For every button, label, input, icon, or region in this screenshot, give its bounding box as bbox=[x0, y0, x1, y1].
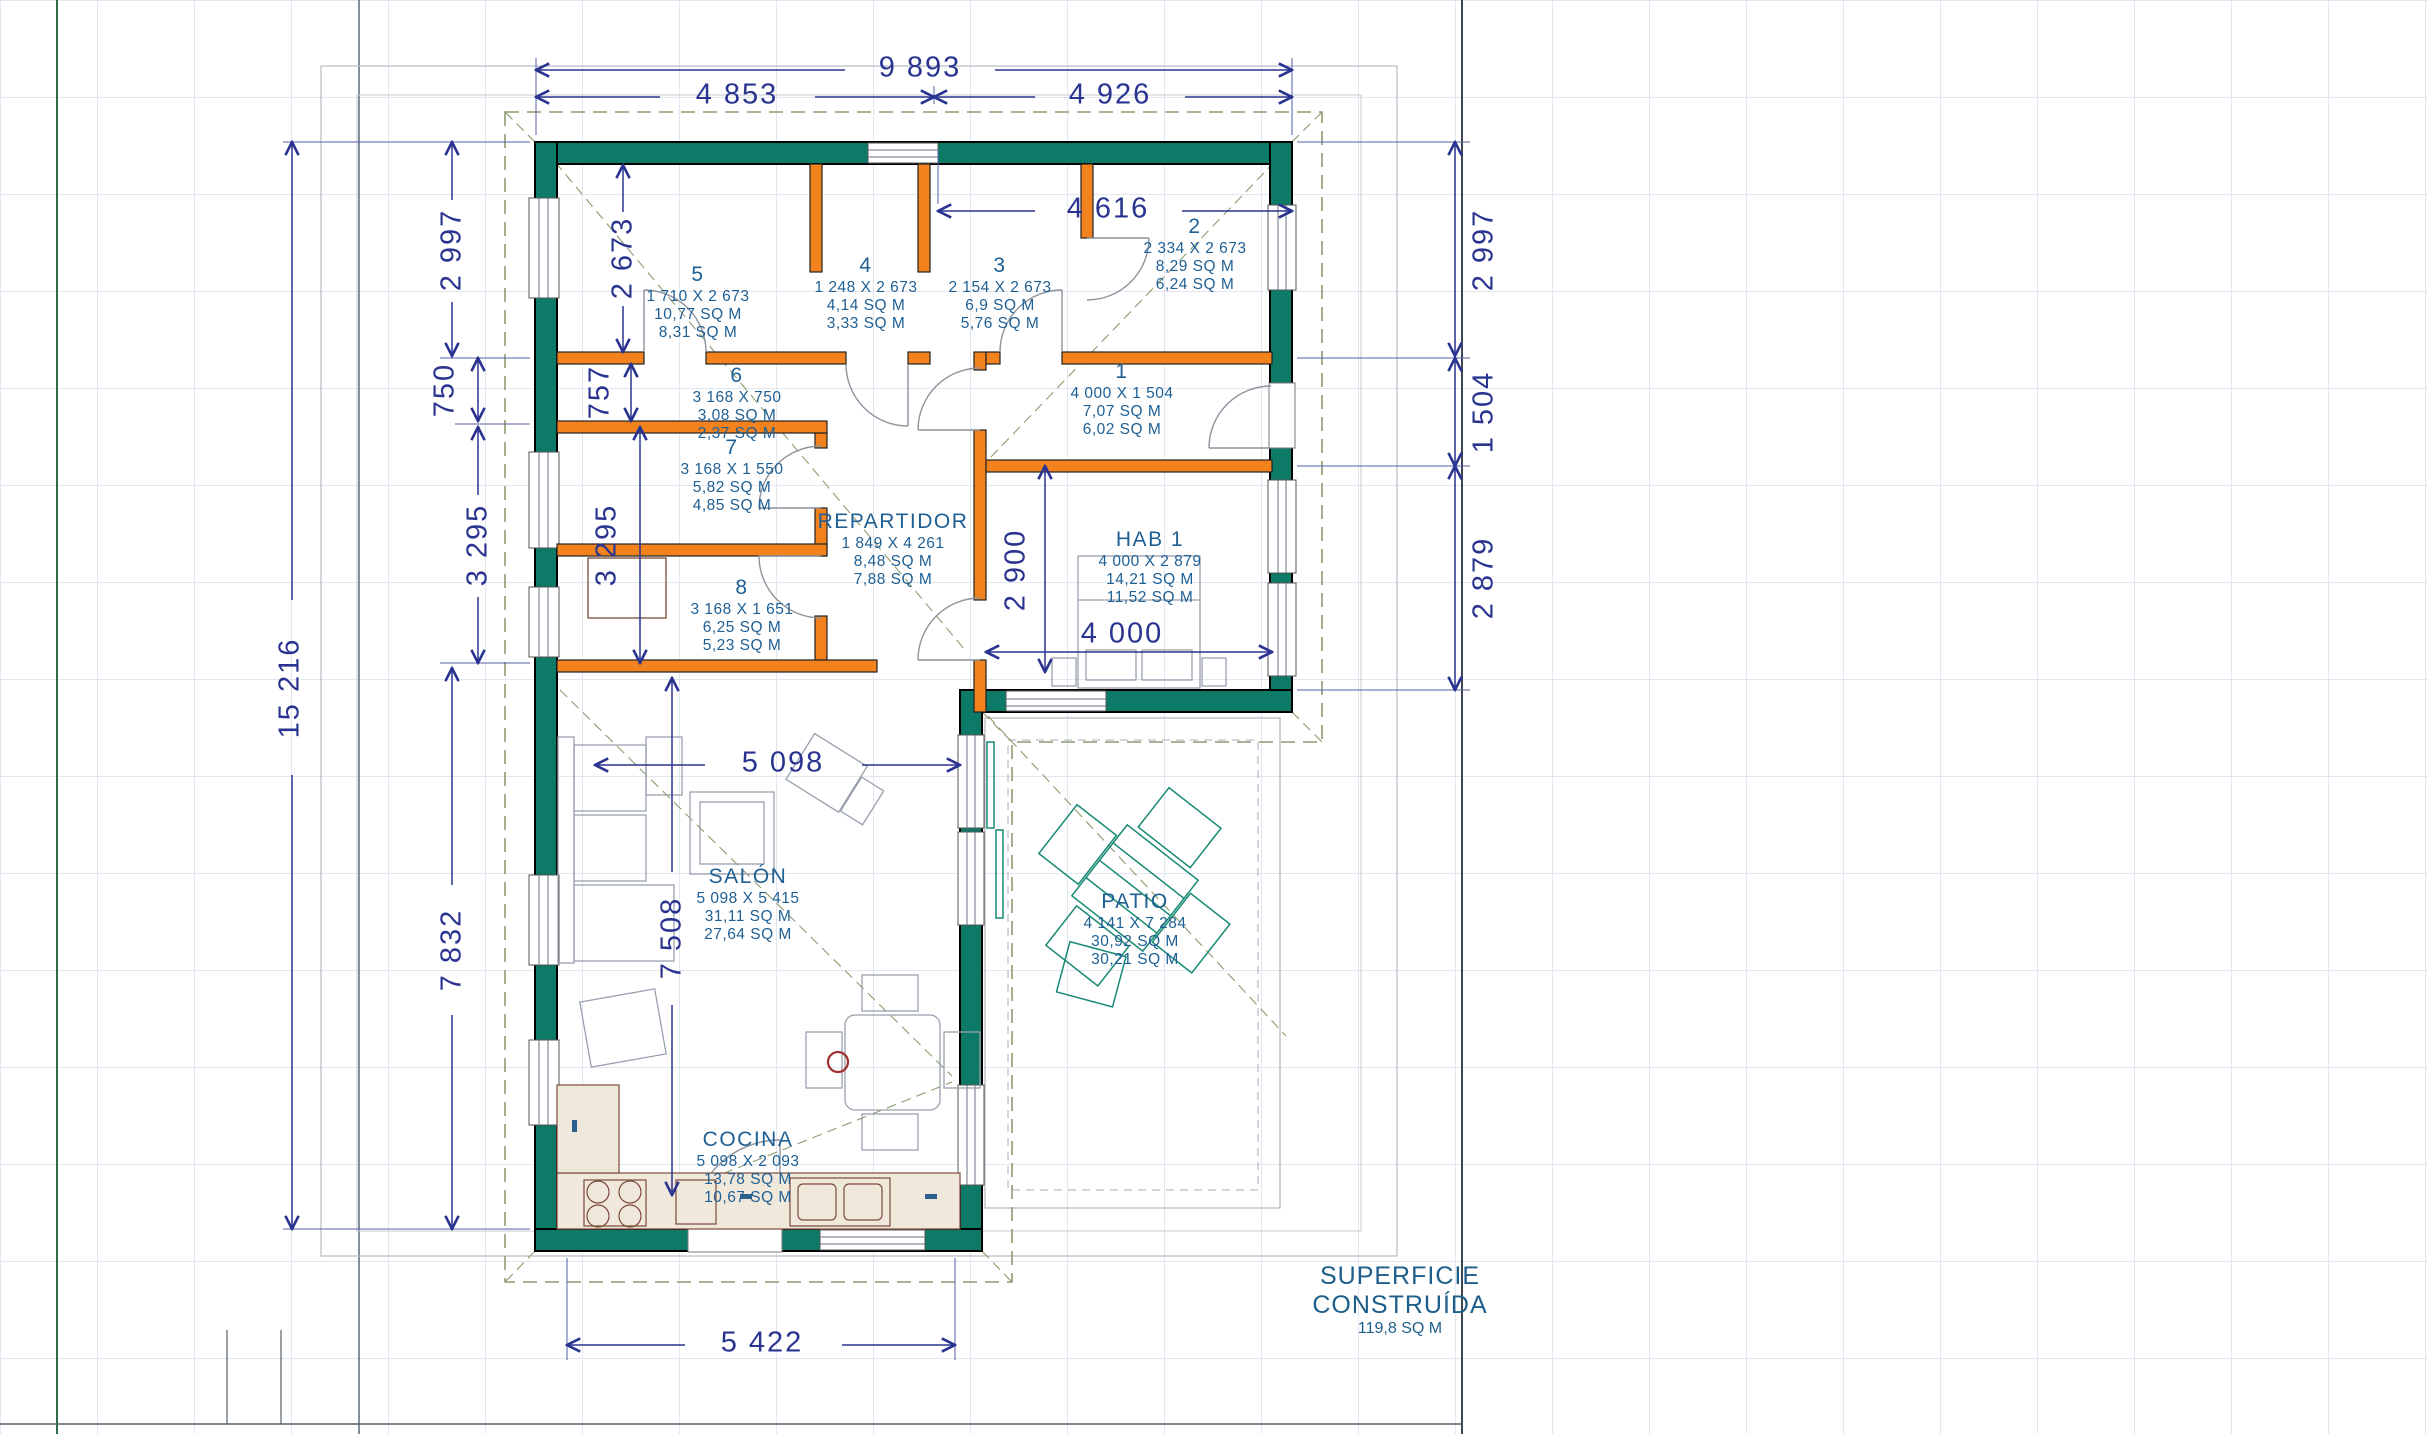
room-label-salon: SALÓN5 098 X 5 41531,11 SQ M27,64 SQ M bbox=[696, 865, 799, 945]
dining-table bbox=[806, 975, 980, 1150]
room-label-repartidor: REPARTIDOR1 849 X 4 2618,48 SQ M7,88 SQ … bbox=[818, 510, 969, 590]
dim-inner-lower: 7 508 bbox=[656, 897, 689, 980]
dim-inner-mid: 3 295 bbox=[591, 504, 624, 587]
dim-entry-width: 4 616 bbox=[1067, 193, 1150, 226]
patio-set bbox=[987, 742, 1273, 1027]
dim-hab-height: 2 900 bbox=[1000, 529, 1033, 612]
dim-inner-upper: 2 673 bbox=[607, 217, 640, 300]
built-surface-summary: SUPERFICIE CONSTRUÍDA 119,8 SQ M bbox=[1312, 1262, 1487, 1338]
dim-left-mid: 3 295 bbox=[462, 504, 495, 587]
room-label-3: 32 154 X 2 6736,9 SQ M5,76 SQ M bbox=[948, 254, 1051, 334]
dim-left-750: 750 bbox=[429, 363, 462, 417]
room-label-4: 41 248 X 2 6734,14 SQ M3,33 SQ M bbox=[814, 254, 917, 334]
dim-hab-width: 4 000 bbox=[1081, 618, 1164, 651]
dim-left-upper: 2 997 bbox=[436, 209, 469, 292]
floor-plan: 9 893 4 853 4 926 4 616 15 216 2 997 750… bbox=[0, 0, 2428, 1434]
room-label-hab1: HAB 14 000 X 2 87914,21 SQ M11,52 SQ M bbox=[1098, 528, 1201, 608]
room-label-2: 22 334 X 2 6738,29 SQ M6,24 SQ M bbox=[1143, 215, 1246, 295]
dim-left-total: 15 216 bbox=[274, 638, 307, 739]
dim-right-mid: 1 504 bbox=[1468, 371, 1501, 454]
dim-top-right: 4 926 bbox=[1069, 79, 1152, 112]
room-label-6: 63 168 X 7503,08 SQ M2,37 SQ M bbox=[692, 364, 781, 444]
room-label-8: 83 168 X 1 6516,25 SQ M5,23 SQ M bbox=[690, 576, 793, 656]
room-label-7: 73 168 X 1 5505,82 SQ M4,85 SQ M bbox=[680, 436, 783, 516]
dim-top-total: 9 893 bbox=[879, 52, 962, 85]
room-label-cocina: COCINA5 098 X 2 09313,78 SQ M10,67 SQ M bbox=[696, 1128, 799, 1208]
room-label-1: 14 000 X 1 5047,07 SQ M6,02 SQ M bbox=[1070, 360, 1173, 440]
dim-right-lower: 2 879 bbox=[1468, 537, 1501, 620]
dim-left-lower: 7 832 bbox=[436, 909, 469, 992]
dim-right-upper: 2 997 bbox=[1468, 209, 1501, 292]
dim-salon-width: 5 098 bbox=[742, 747, 825, 780]
room-label-patio: PATIO4 141 X 7 28430,92 SQ M30,21 SQ M bbox=[1083, 890, 1186, 970]
dim-bottom-width: 5 422 bbox=[721, 1327, 804, 1360]
dim-inner-757: 757 bbox=[584, 365, 617, 419]
room-label-5: 51 710 X 2 67310,77 SQ M8,31 SQ M bbox=[646, 263, 749, 343]
dim-top-left: 4 853 bbox=[696, 79, 779, 112]
